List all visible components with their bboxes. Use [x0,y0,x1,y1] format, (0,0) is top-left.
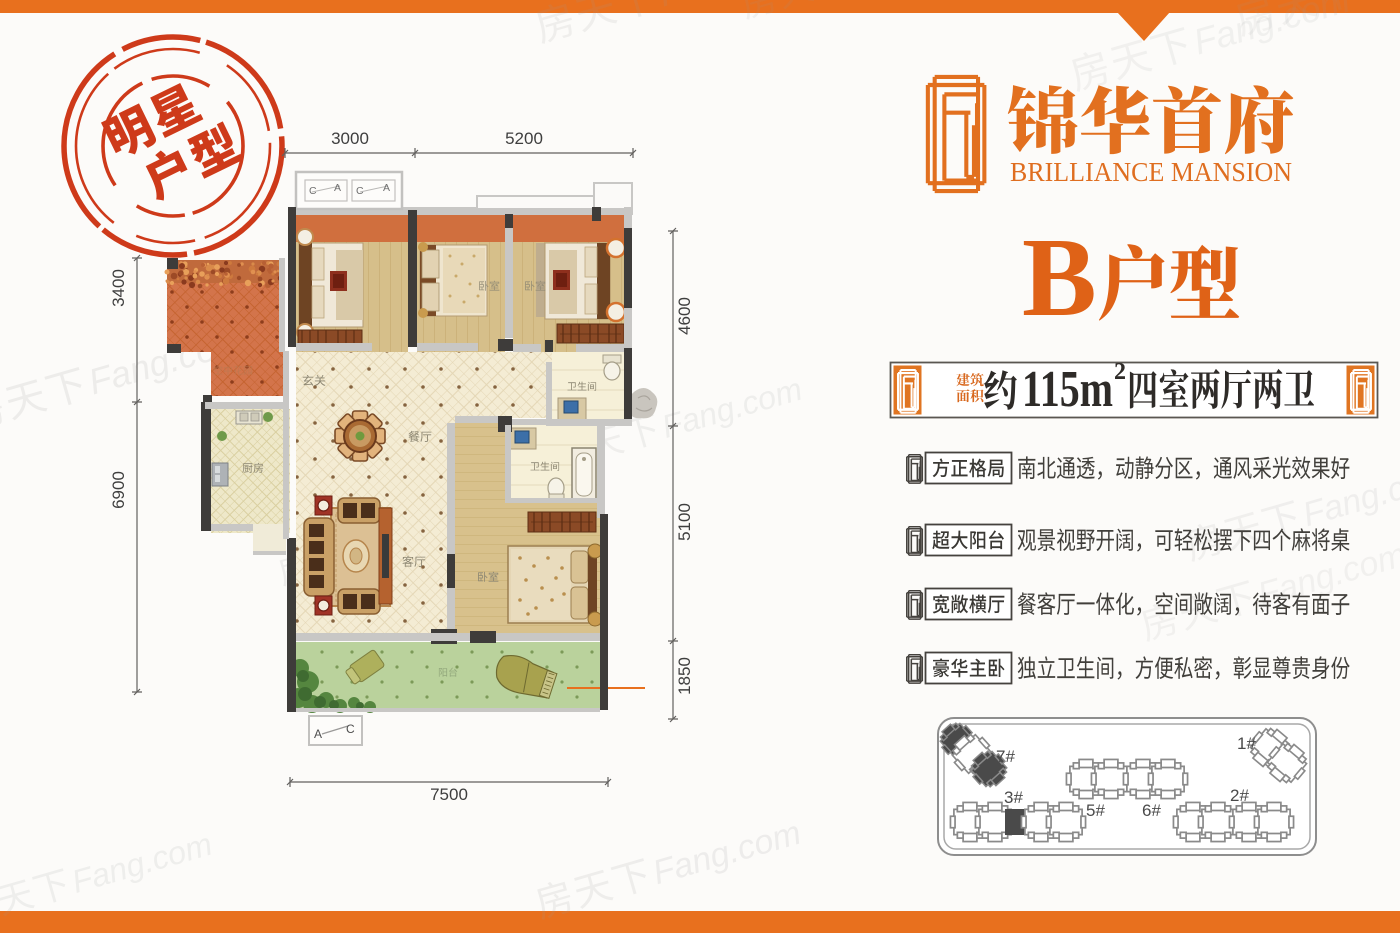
svg-text:6#: 6# [1142,801,1161,820]
svg-text:BRILLIANCE MANSION: BRILLIANCE MANSION [1010,157,1292,187]
svg-text:4600: 4600 [675,297,694,335]
svg-text:C: C [346,722,355,736]
svg-text:C: C [356,185,364,197]
svg-text:7#: 7# [996,747,1015,766]
svg-text:3000: 3000 [331,129,369,148]
svg-text:A: A [334,182,341,194]
svg-text:1#: 1# [1237,734,1256,753]
svg-text:5100: 5100 [675,503,694,541]
svg-text:A: A [314,727,322,741]
svg-text:3400: 3400 [109,269,128,307]
svg-text:B: B [1022,216,1097,340]
svg-text:115m: 115m [1022,361,1113,418]
svg-text:C: C [309,185,317,197]
svg-text:2: 2 [1114,359,1126,385]
svg-text:5200: 5200 [505,129,543,148]
svg-text:6900: 6900 [109,471,128,509]
svg-text:7500: 7500 [430,785,468,804]
svg-text:A: A [383,182,390,194]
svg-text:3#: 3# [1004,788,1023,807]
svg-text:1850: 1850 [675,657,694,695]
svg-text:2#: 2# [1230,786,1249,805]
svg-text:5#: 5# [1086,801,1105,820]
